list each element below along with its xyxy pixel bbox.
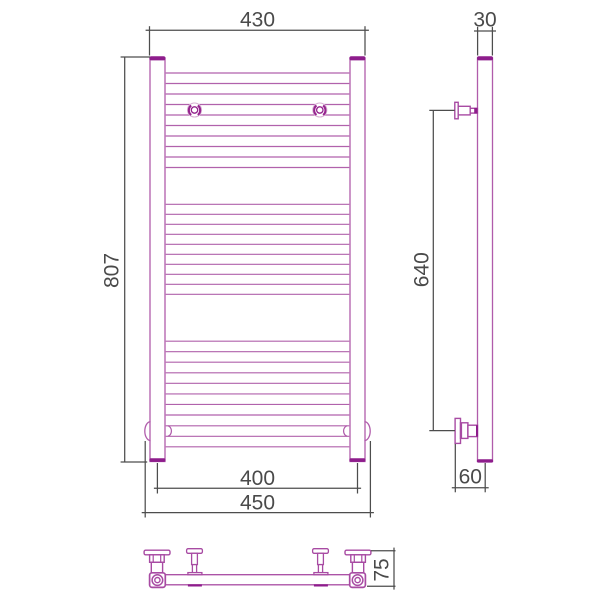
svg-text:60: 60 xyxy=(459,465,482,488)
svg-text:400: 400 xyxy=(240,467,275,490)
svg-text:640: 640 xyxy=(411,252,434,287)
svg-text:807: 807 xyxy=(101,253,124,288)
svg-text:75: 75 xyxy=(371,558,394,581)
svg-text:30: 30 xyxy=(473,9,496,32)
svg-text:450: 450 xyxy=(240,491,275,514)
svg-text:430: 430 xyxy=(240,9,275,32)
